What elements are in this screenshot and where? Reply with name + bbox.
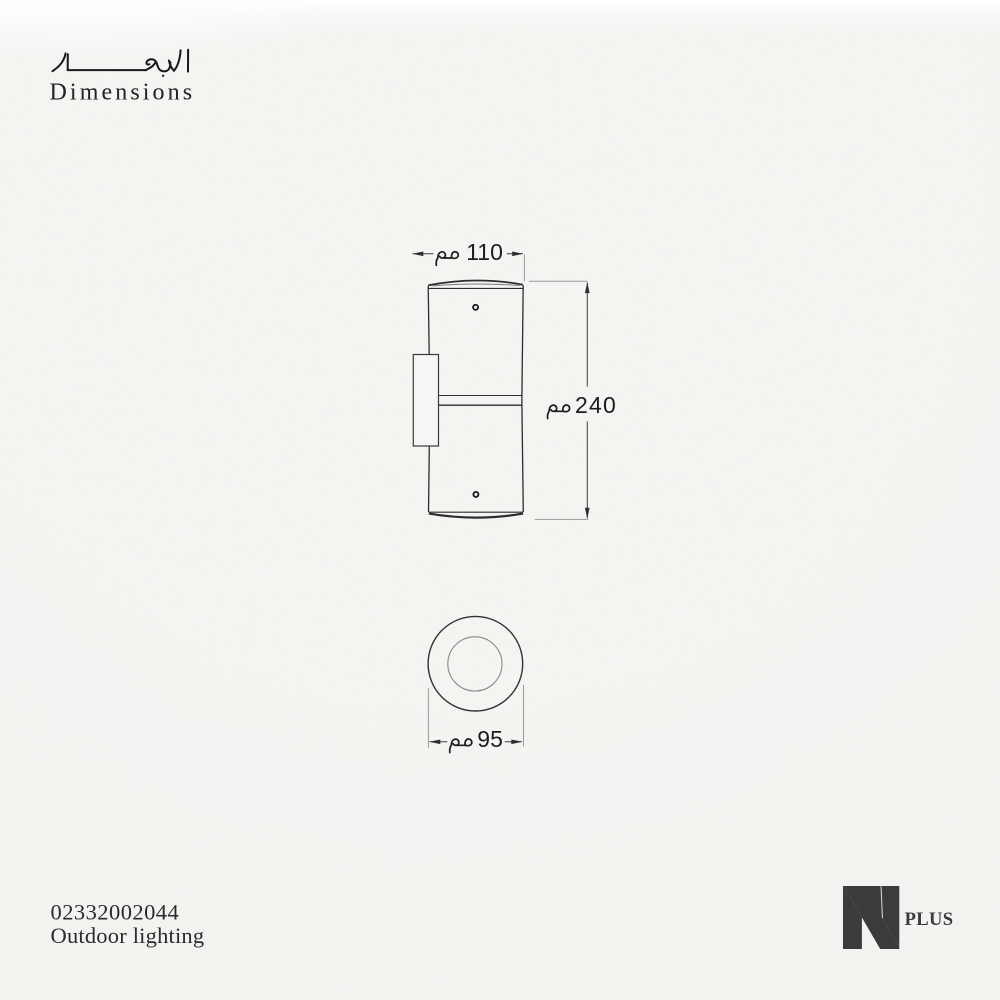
svg-text:95: 95 xyxy=(477,726,503,752)
svg-text:Outdoor lighting: Outdoor lighting xyxy=(51,923,205,948)
svg-text:240: 240 xyxy=(575,392,617,418)
svg-text:02332002044: 02332002044 xyxy=(51,899,180,924)
svg-text:Dimensions: Dimensions xyxy=(50,80,196,106)
svg-text:PLUS: PLUS xyxy=(905,910,954,930)
svg-text:110: 110 xyxy=(466,239,503,265)
